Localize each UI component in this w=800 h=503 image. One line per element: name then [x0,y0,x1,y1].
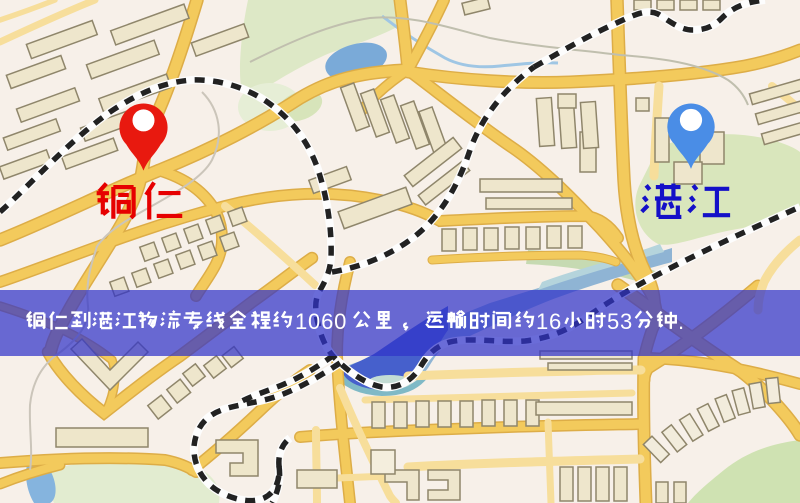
svg-text:53: 53 [607,309,633,334]
svg-text:16: 16 [536,309,562,334]
svg-text:1060: 1060 [295,309,347,334]
svg-text:.: . [678,309,684,334]
